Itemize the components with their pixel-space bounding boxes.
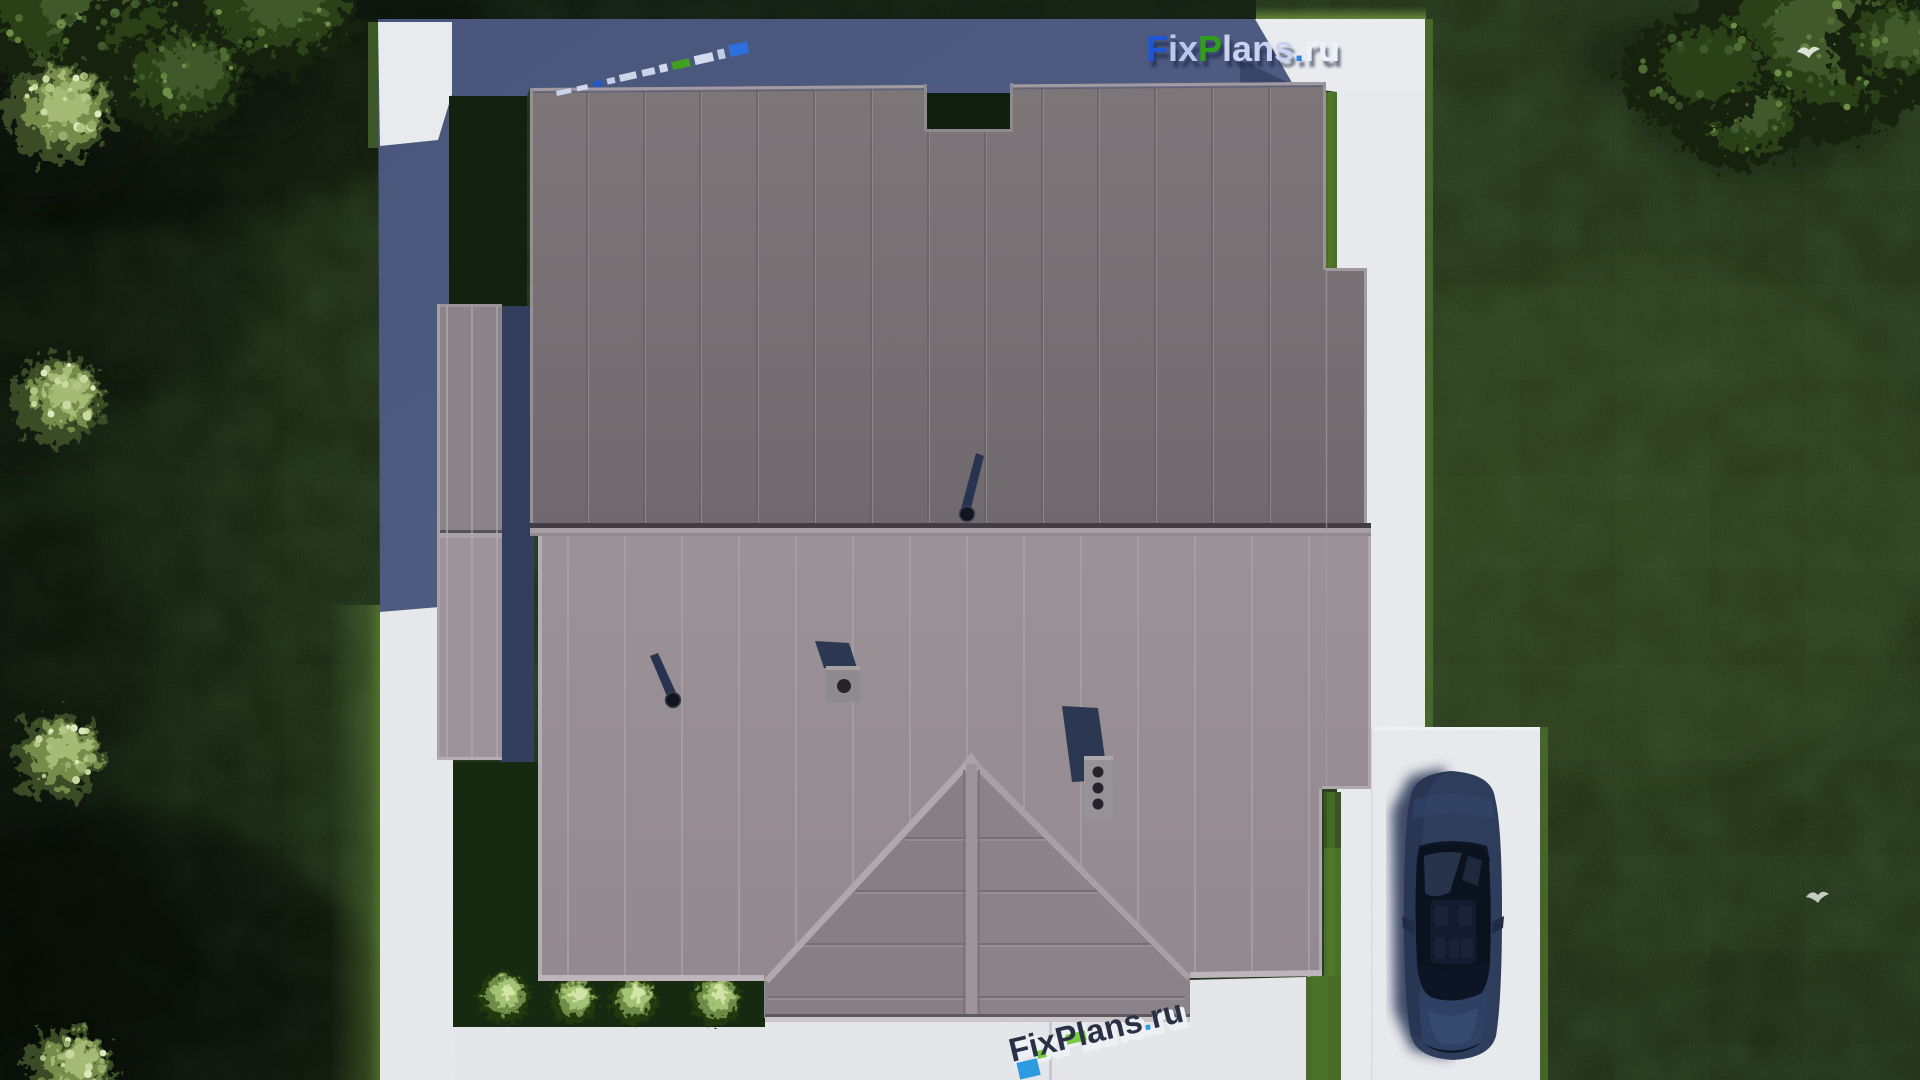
svg-text:FixPlans.ru: FixPlans.ru: [1146, 28, 1340, 69]
